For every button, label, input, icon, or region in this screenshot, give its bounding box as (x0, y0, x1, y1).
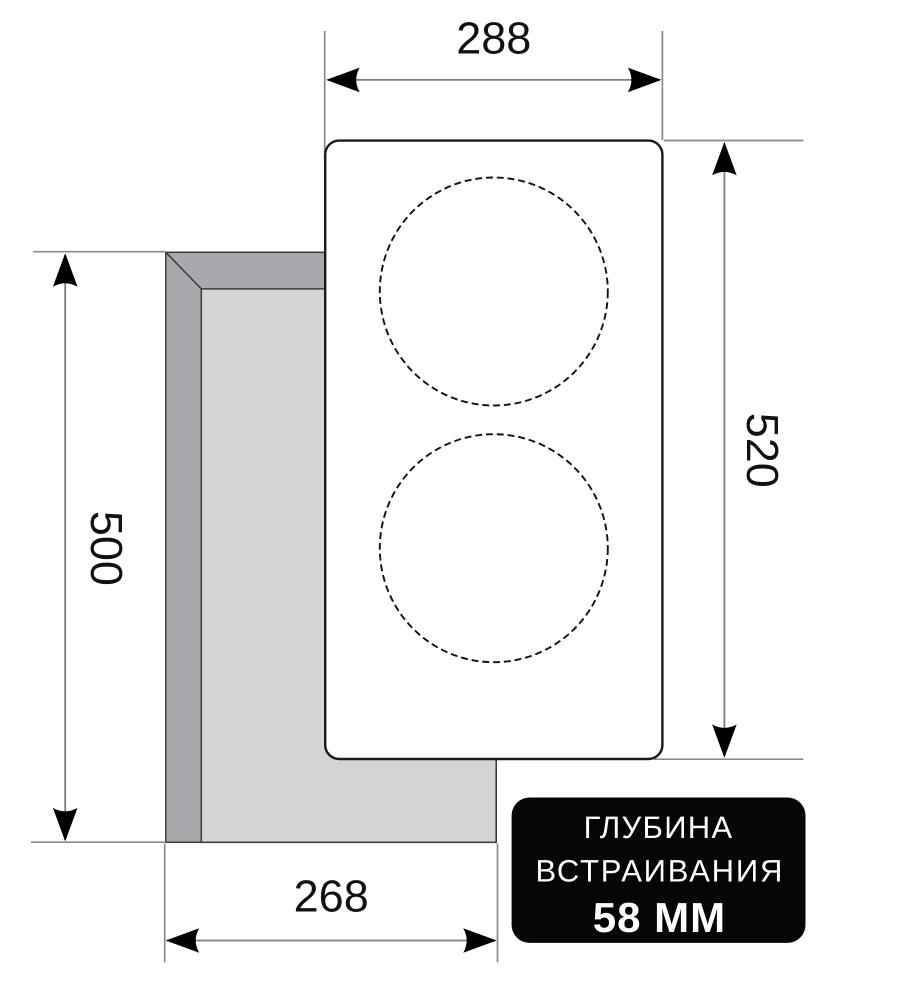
svg-text:500: 500 (81, 511, 132, 586)
svg-text:ВСТРАИВАНИЯ: ВСТРАИВАНИЯ (535, 854, 784, 889)
svg-text:ГЛУБИНА: ГЛУБИНА (584, 810, 734, 845)
svg-text:268: 268 (294, 871, 369, 922)
svg-text:520: 520 (737, 413, 788, 488)
svg-text:288: 288 (456, 13, 531, 64)
svg-text:58 ММ: 58 ММ (593, 894, 726, 941)
